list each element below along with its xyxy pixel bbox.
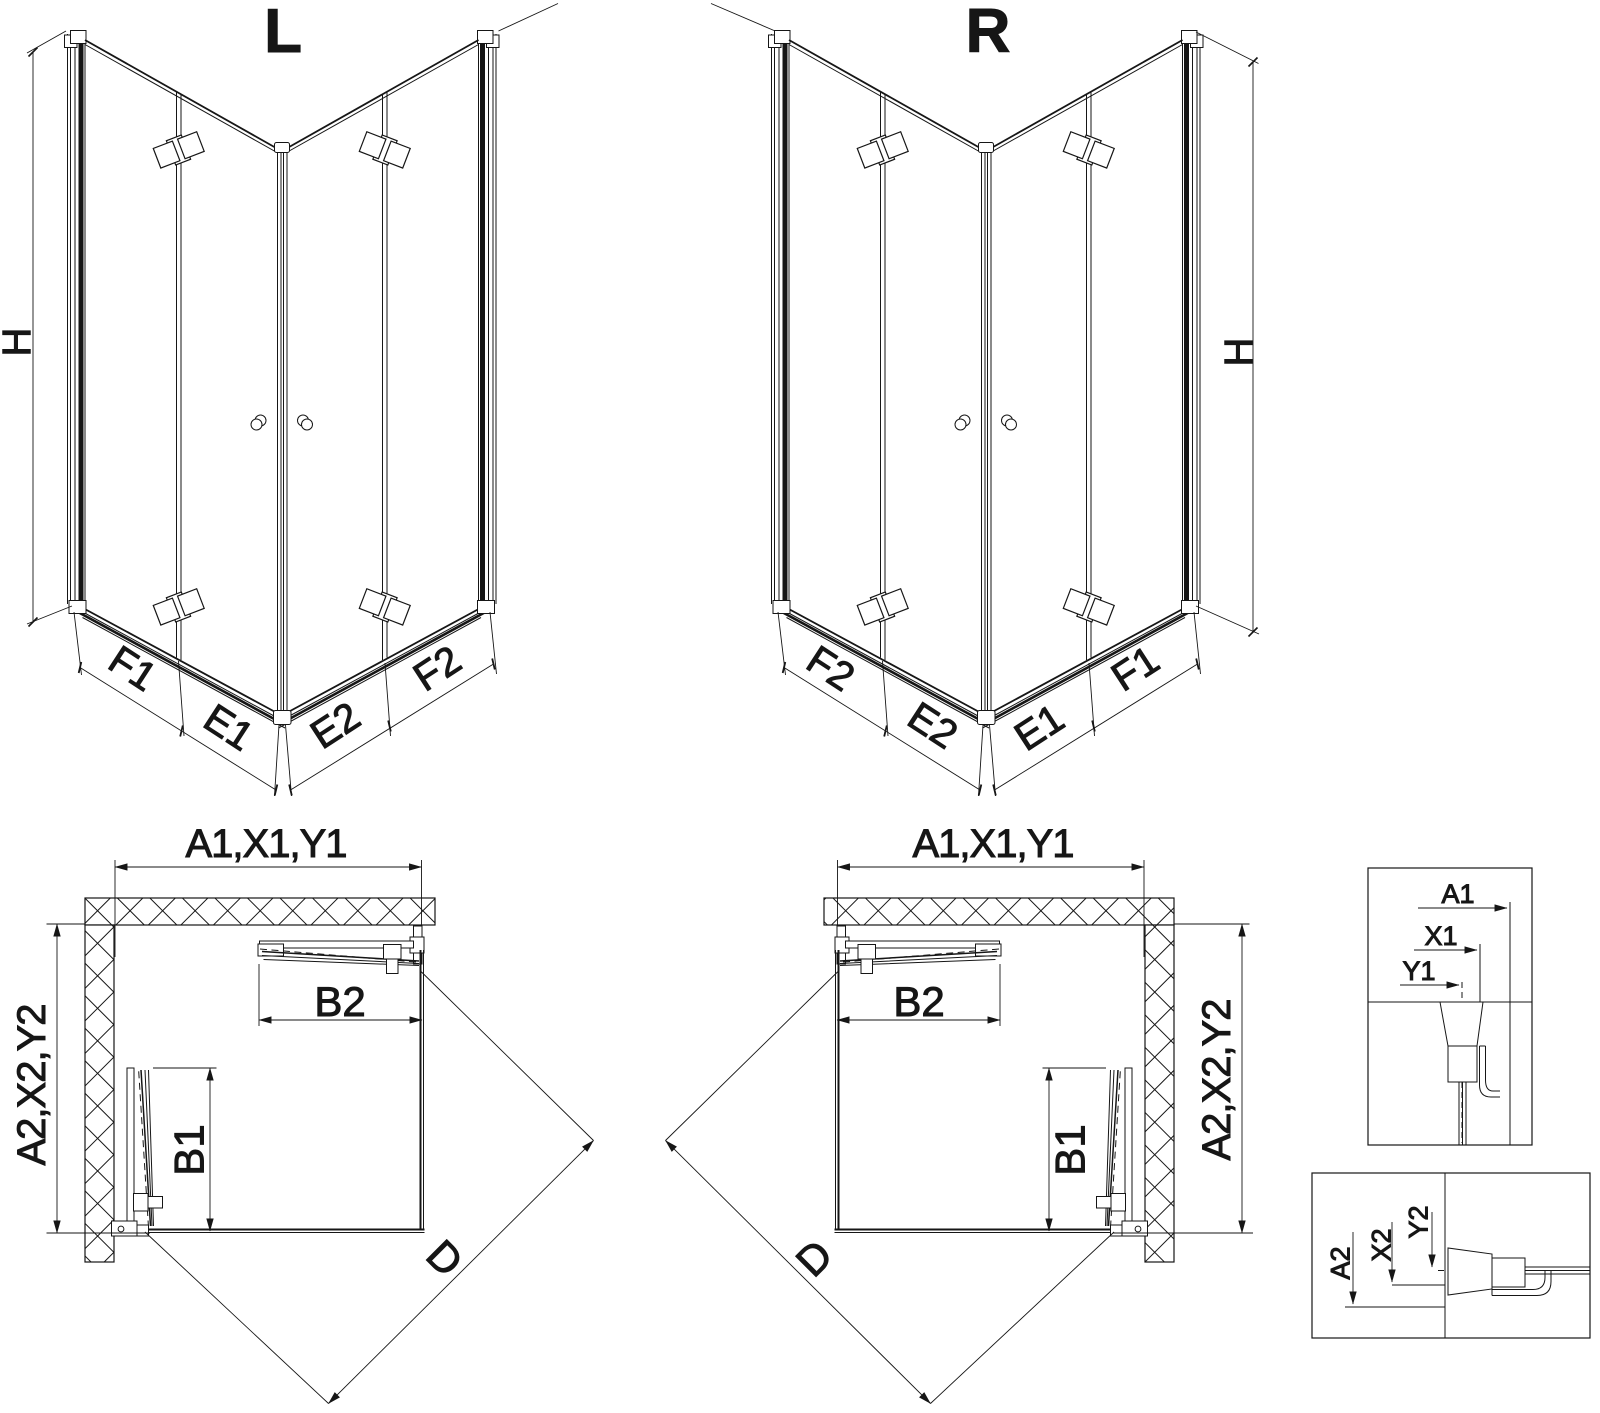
dim-label-width: A1,X1,Y1 [912, 822, 1073, 866]
detail-label-y2: Y2 [1403, 1205, 1433, 1238]
detail-section-bottom: A2 X2 Y2 [1312, 1173, 1590, 1338]
detail-label-a2: A2 [1325, 1246, 1355, 1279]
dim-label-f2: F2 [799, 638, 862, 700]
plan-view-right: A1,X1,Y1 A2,X2,Y2 B2 B1 D [666, 822, 1254, 1404]
wall-profile-section [1440, 1002, 1500, 1145]
view-title-right: R [966, 0, 1011, 66]
dim-label-b2: B2 [893, 978, 944, 1025]
dim-label-width: A1,X1,Y1 [185, 822, 346, 866]
wall-edge-stub [499, 4, 559, 32]
perspective-view-right: R H F2 E2 E1 F1 [711, 0, 1261, 796]
height-dimension-right [1196, 32, 1259, 637]
perspective-view-left: L H F1 E1 E2 F2 [0, 0, 558, 796]
detail-label-y1: Y1 [1402, 956, 1435, 986]
detail-label-x1: X1 [1424, 921, 1457, 951]
wall-top [824, 898, 1174, 925]
plan-view-left: A1,X1,Y1 A2,X2,Y2 B2 B1 D [10, 822, 594, 1404]
detail-label-a1: A1 [1441, 879, 1474, 909]
dim-label-height: H [1217, 338, 1261, 367]
dim-label-depth: A2,X2,Y2 [1195, 999, 1239, 1160]
dim-label-b1: B1 [166, 1124, 213, 1175]
view-title-left: L [264, 0, 302, 66]
wall-profile-section [1448, 1248, 1590, 1296]
wall-top [85, 898, 435, 925]
dim-label-d: D [418, 1231, 473, 1286]
technical-drawing-page: L H F1 E1 E2 F2 R H F2 E2 E1 F1 A1,X1,Y1… [0, 0, 1600, 1413]
wall-left [85, 925, 114, 1262]
shower-enclosure-diagram: L H F1 E1 E2 F2 R H F2 E2 E1 F1 A1,X1,Y1… [0, 0, 1600, 1413]
detail-section-top: A1 X1 Y1 [1368, 868, 1532, 1145]
detail-label-x2: X2 [1366, 1228, 1396, 1261]
dim-label-b2: B2 [314, 978, 365, 1025]
wall-right [1145, 925, 1174, 1262]
dim-label-depth: A2,X2,Y2 [10, 1004, 54, 1165]
dim-label-height: H [0, 328, 39, 357]
dim-label-b1: B1 [1047, 1124, 1094, 1175]
dim-label-d: D [787, 1231, 842, 1286]
wall-edge-stub [711, 4, 774, 31]
